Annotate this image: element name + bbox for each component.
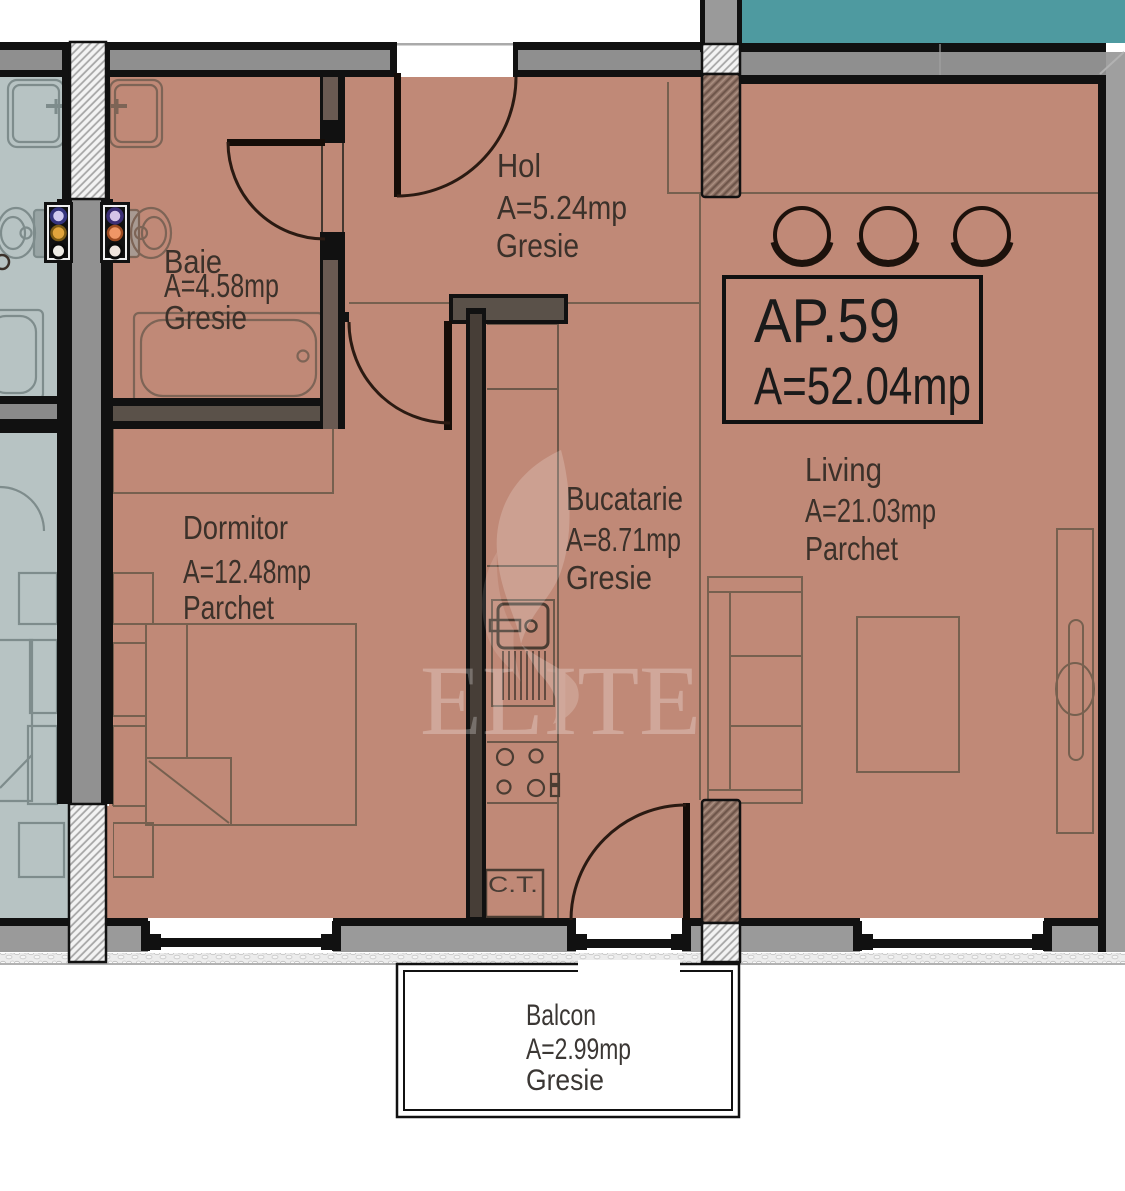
svg-text:Bucatarie: Bucatarie	[566, 480, 683, 517]
svg-text:Balcon: Balcon	[526, 999, 596, 1032]
svg-text:Gresie: Gresie	[496, 227, 579, 264]
svg-text:Parchet: Parchet	[805, 530, 898, 567]
svg-text:Living: Living	[805, 451, 882, 488]
svg-text:ELITE: ELITE	[420, 645, 701, 756]
svg-text:C.T.: C.T.	[488, 872, 538, 897]
svg-text:A=52.04mp: A=52.04mp	[754, 357, 971, 416]
svg-text:Gresie: Gresie	[566, 559, 652, 596]
svg-text:Parchet: Parchet	[183, 589, 274, 626]
svg-text:Dormitor: Dormitor	[183, 509, 288, 546]
svg-text:AP.59: AP.59	[754, 287, 900, 356]
svg-text:A=5.24mp: A=5.24mp	[497, 189, 627, 226]
svg-text:A=21.03mp: A=21.03mp	[805, 492, 936, 529]
svg-text:A=2.99mp: A=2.99mp	[526, 1033, 631, 1066]
svg-text:A=12.48mp: A=12.48mp	[183, 553, 311, 590]
svg-text:Gresie: Gresie	[526, 1064, 604, 1097]
svg-text:Hol: Hol	[497, 147, 541, 184]
svg-text:A=8.71mp: A=8.71mp	[566, 521, 681, 558]
svg-text:Gresie: Gresie	[164, 299, 247, 336]
